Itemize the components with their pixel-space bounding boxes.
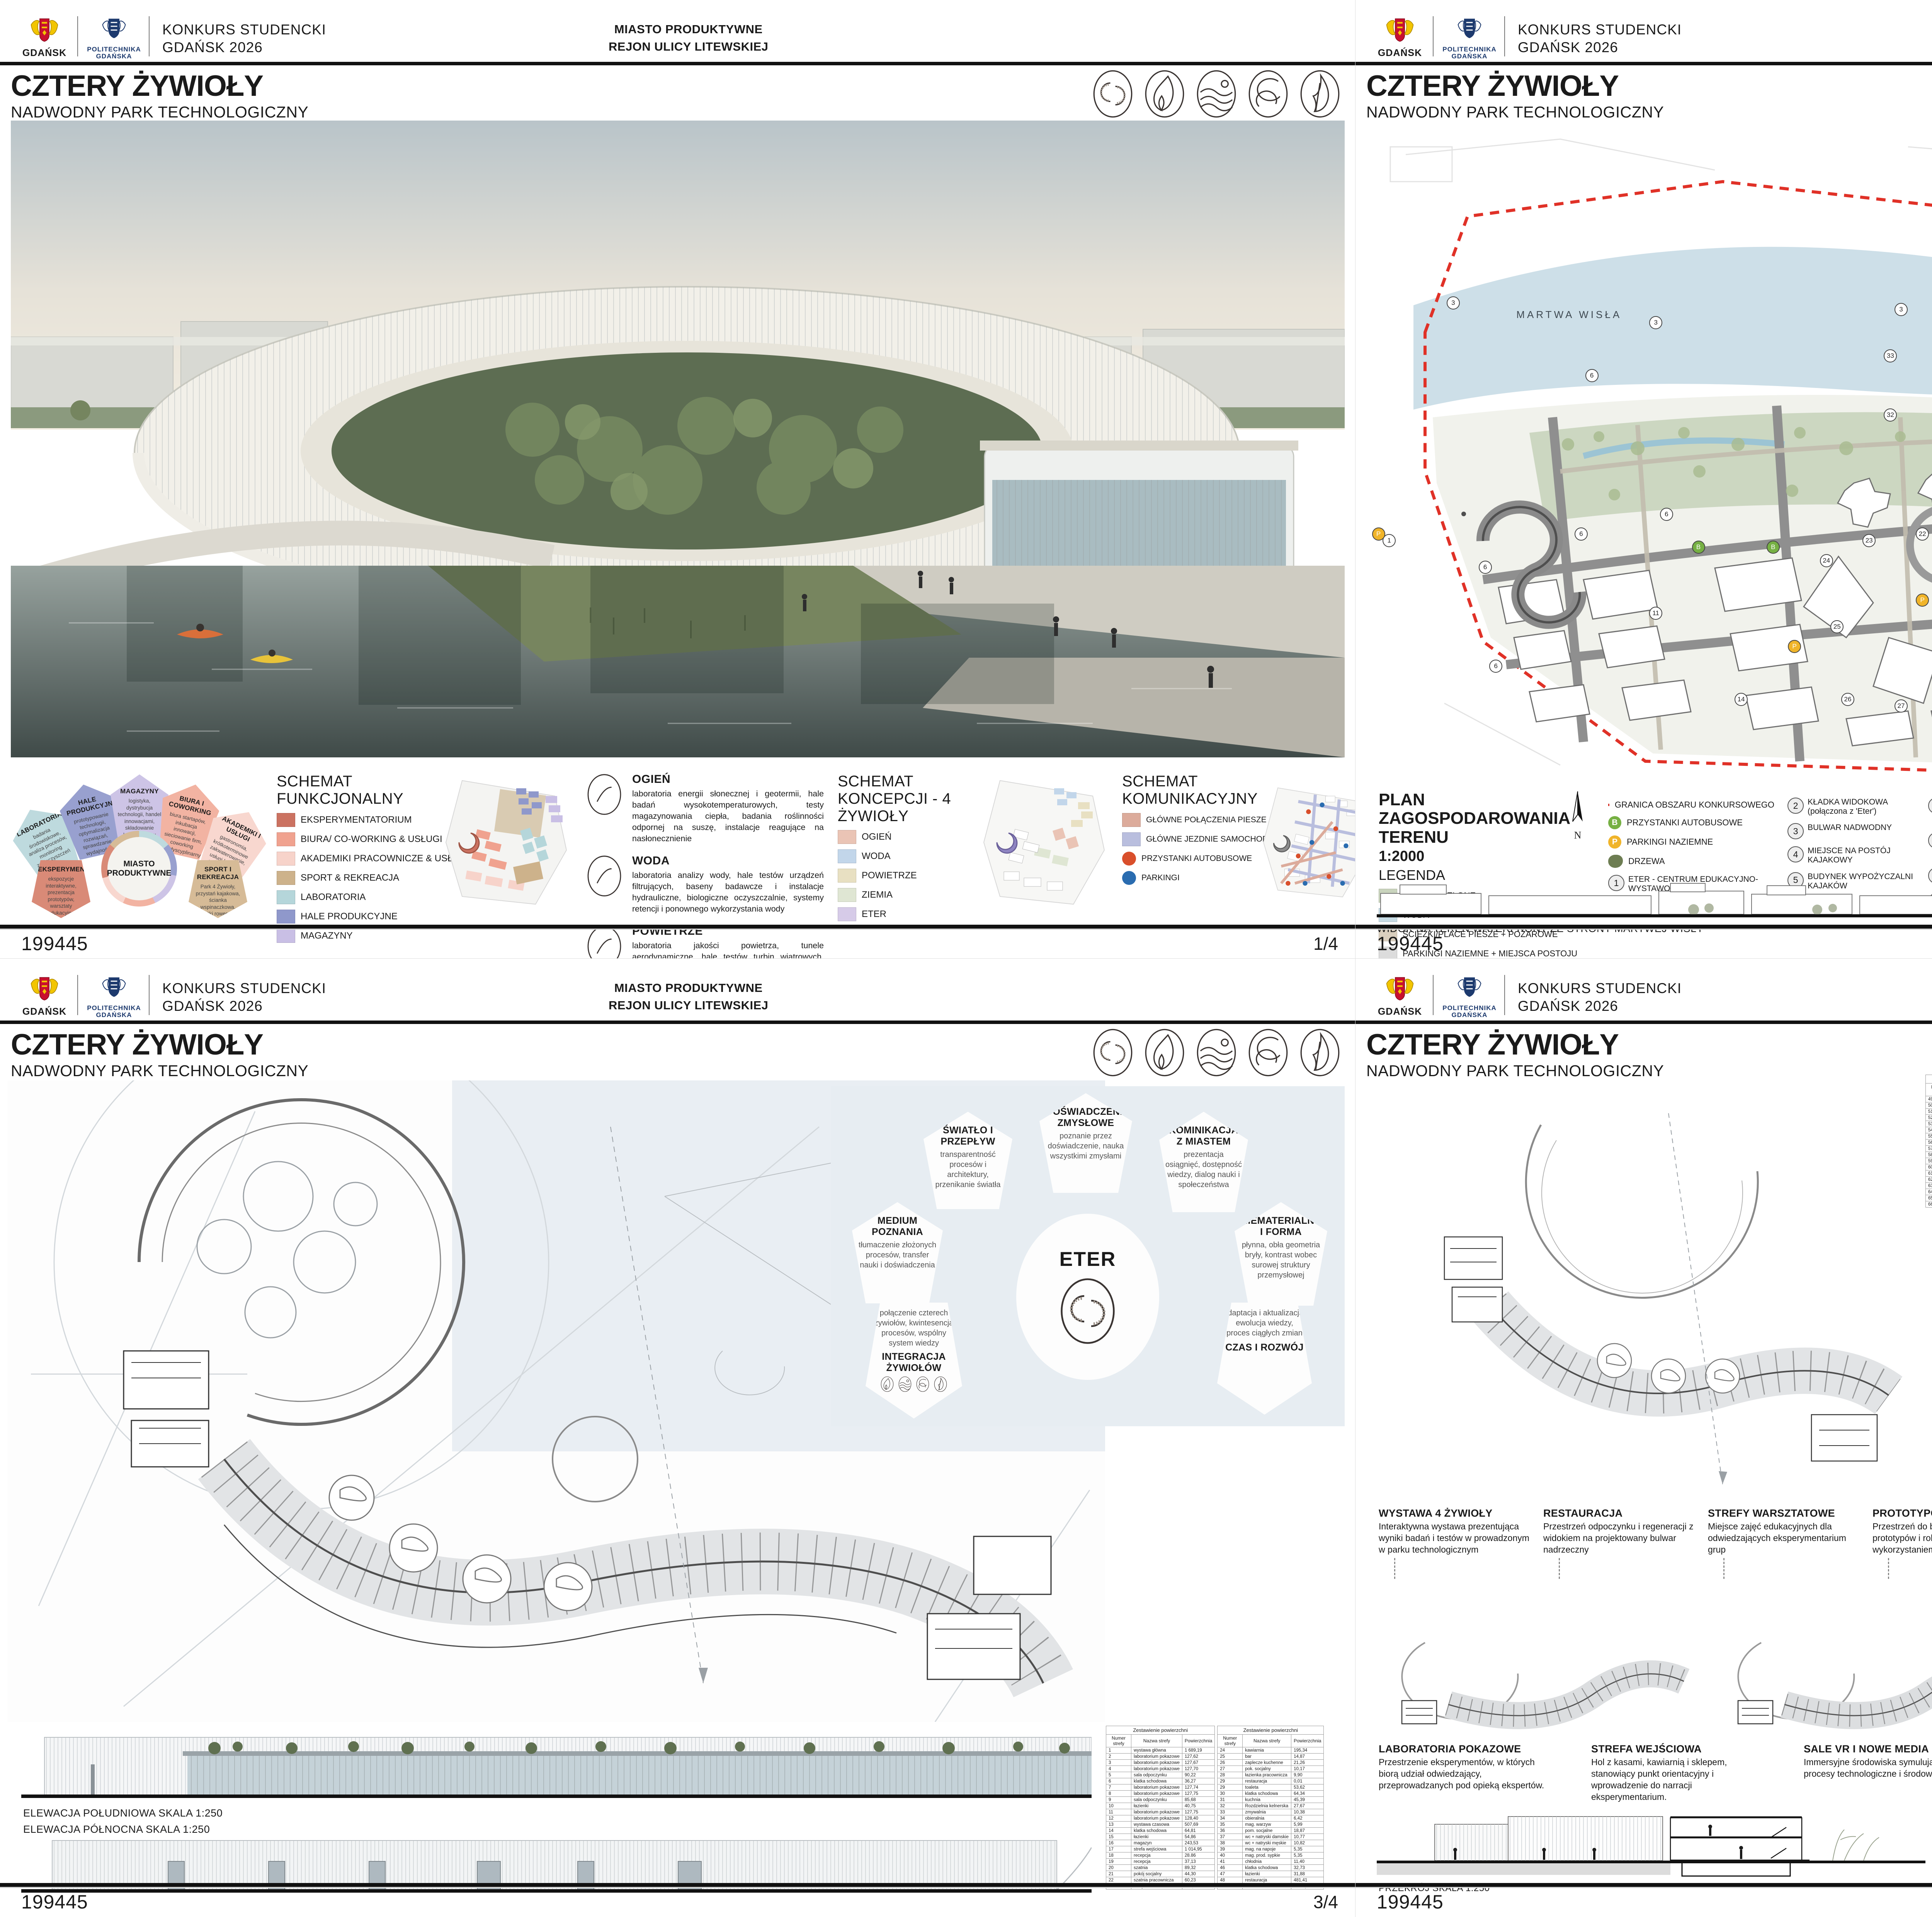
eter-petal: NIEMATERIALNOŚĆ I FORMApłynna, obła geom… (1235, 1202, 1327, 1306)
area-tables: Zestawienie powierzchni Numer strefy Naz… (1106, 1726, 1324, 1890)
plan-marker: 14 (1735, 693, 1748, 706)
plan-marker: 25 (1830, 620, 1844, 633)
legend-item: POWIETRZE (838, 869, 969, 883)
legend-item: LABORATORIA (277, 890, 431, 904)
eter-petal: MEDIUM POZNANIAtłumaczenie złożonych pro… (852, 1202, 943, 1303)
legend-item: ETER (838, 907, 969, 921)
eter-logo-icon (1055, 1276, 1121, 1346)
eter-diagram: ŚWIATŁO I PRZEPŁYWtransparentność proces… (831, 1086, 1345, 1426)
eter-petal: ŚWIATŁO I PRZEPŁYWtransparentność proces… (923, 1112, 1012, 1209)
numbered-item: 4MIEJSCE NA POSTÓJ KAJAKOWY (1787, 846, 1915, 865)
table-row: 40 mag. prod. sypkie 5,35 (1218, 1852, 1324, 1859)
element-icon (584, 773, 624, 816)
table-row: 30 klatka schodowa 64,34 (1218, 1791, 1324, 1797)
numbered-item: 6BUYDNKI Z MIESZANĄ FUNKCJĄ - BIURA, CO-… (1928, 798, 1932, 825)
table-row: 52 wystawa czasowa 384.61 (1926, 1115, 1932, 1121)
air-icon (1244, 69, 1292, 119)
table-row: 54 hol komunikacyjno- integracyjny 332,3… (1926, 1127, 1932, 1133)
elements-descriptions: OGIEŃ laboratoria energii słonecznej i g… (584, 773, 824, 920)
upper-floor-plan (1375, 1090, 1916, 1500)
table-row: 58 warsztaty 64,67 (1926, 1152, 1932, 1158)
board1-diagrams-strip: LABORATORIAbadania środowiskowe, analiza… (15, 773, 1345, 920)
element-icons (1089, 69, 1344, 119)
table-row: 31 kuchnia 45,39 (1218, 1797, 1324, 1803)
legend-item: PARKINGI (1122, 871, 1250, 885)
schemat-funkcjonalny: SCHEMAT FUNKCJONALNY EKSPERYMENTATORIUM … (277, 773, 570, 920)
table-row: 28 łazienka pracownicza 9,90 (1218, 1772, 1324, 1778)
site-plan: MARTWA WISŁA 1 3 3 3 6 6 6 6 6 11 (1367, 124, 1932, 784)
project-title-block: CZTERY ŻYWIOŁY NADWODNY PARK TECHNOLOGIC… (1366, 1030, 1664, 1080)
table-row: 6 klatka schodowa 36,27 (1106, 1778, 1215, 1784)
legend-item: BIURA/ CO-WORKING & USŁUGI (277, 832, 431, 846)
callouts-bottom: LABORATORIA POKAZOWE Przestrzenie eksper… (1379, 1743, 1932, 1803)
gdansk-logo-label: GDAŃSK (21, 48, 68, 59)
schemat-funkcjonalny-title: SCHEMAT FUNKCJONALNY (277, 773, 431, 808)
table-row: 10 łazienki 40,75 (1106, 1803, 1215, 1809)
element-item: WODA laboratoria analizy wody, hale test… (584, 854, 824, 915)
gdansk-crest-icon (1383, 15, 1417, 45)
fire-icon (879, 1376, 895, 1392)
table-row: 8 laboratorium pokazowe 127,75 (1106, 1791, 1215, 1797)
table-row: 46 klatka schodowa 32,73 (1218, 1865, 1324, 1871)
table-row: 20 szatnia 89,32 (1106, 1865, 1215, 1871)
area-table: Zestawienie powierzchni Numer strefy Naz… (1925, 1075, 1932, 1208)
table-row: 12 laboratorium pokazowe 128,40 (1106, 1815, 1215, 1822)
table-row: 62 sala VR 92,91 (1926, 1177, 1932, 1183)
water-label: MARTWA WISŁA (1516, 309, 1622, 321)
table-row: 22 szatnia pracownicza 60,23 (1106, 1877, 1215, 1883)
legend-item: WODA (838, 849, 969, 863)
table-row: 36 pom. socjalne 18,87 (1218, 1828, 1324, 1834)
air-icon (915, 1376, 930, 1392)
competition-theme: MIASTO PRODUKTYWNE REJON ULICY LITEWSKIE… (609, 980, 769, 1014)
eter-petal: DOŚWIADCZENIA ZMYSŁOWEpoznanie przez doś… (1039, 1093, 1132, 1193)
table-row: 50 łazienka 66,58 (1926, 1102, 1932, 1109)
board-2: GDAŃSK POLITECHNIKA GDAŃSKA KONKURS STUD… (1355, 0, 1932, 959)
eter-logo-icon (1089, 69, 1137, 119)
air-icon (1244, 1027, 1292, 1078)
table-row: 49 magazyn 248,76 (1926, 1096, 1932, 1102)
table-row: 25 bar 14,87 (1218, 1754, 1324, 1760)
table-row: 11 laboratorium pokazowe 127,75 (1106, 1809, 1215, 1815)
table-row: 15 łazienki 54,86 (1106, 1834, 1215, 1840)
project-title: CZTERY ŻYWIOŁY (11, 71, 308, 101)
element-icons (1089, 1027, 1344, 1078)
axon-diagram-1 (1379, 1616, 1696, 1732)
table-row: 4 laboratorium pokazowe 127,70 (1106, 1766, 1215, 1772)
legend-drzewa: DRZEWA (1608, 855, 1774, 868)
politechnika-logo-label: POLITECHNIKA GDAŃSKA (85, 46, 143, 60)
legend-item: GŁÓWNE JEZDNIE SAMOCHODOWE (1122, 832, 1250, 846)
politechnika-logo: POLITECHNIKA GDAŃSKA (1440, 15, 1498, 60)
table-row: 32 Rozdzielnia kelnerska 27,67 (1218, 1803, 1324, 1809)
board3-header: GDAŃSK POLITECHNIKA GDAŃSKA KONKURS STUD… (21, 973, 1334, 1019)
gdansk-logo: GDAŃSK (1377, 15, 1423, 59)
competition-title: KONKURS STUDENCKI GDAŃSK 2026 (162, 980, 326, 1015)
gdansk-crest-icon (28, 973, 61, 1004)
plan-scale: 1:2000 (1379, 848, 1595, 865)
table-row: 29 restauracja 0,01 (1218, 1778, 1324, 1784)
plan-marker: 6 (1585, 369, 1599, 382)
plan-marker: 3 (1895, 303, 1908, 316)
tree-icon (1608, 855, 1623, 868)
numbered-item: 7'AKADEMIKI' DLA PRACOWNIKÓW CAŁEGO OBIE… (1928, 832, 1932, 860)
table-row: 27 pok. socjalny 10,17 (1218, 1766, 1324, 1772)
table-row: 41 chłodnia 11,40 (1218, 1859, 1324, 1865)
project-title-block: CZTERY ŻYWIOŁY NADWODNY PARK TECHNOLOGIC… (11, 71, 308, 121)
element-icon (584, 854, 624, 898)
plan-marker: P (1788, 640, 1801, 653)
table-row: 59 łazienki 65,43 (1926, 1158, 1932, 1164)
board1-footer: 199445 1/4 (0, 925, 1355, 959)
table-row: 61 sala VR 92,90 (1926, 1170, 1932, 1177)
legend-granica: GRANICA OBSZARU KONKURSOWEGO (1608, 800, 1774, 810)
table-row: 9 sala odpoczynku 85,68 (1106, 1797, 1215, 1803)
competition-title: KONKURS STUDENCKI GDAŃSK 2026 (1518, 21, 1682, 57)
legend-item: EKSPERYMENTATORIUM (277, 813, 431, 827)
schemat-koncepcji: SCHEMAT KONCEPCJI - 4 ŻYWIOŁY OGIEŃ WODA (838, 773, 1108, 920)
hero-render (11, 121, 1345, 757)
dashed-boundary-icon (1608, 804, 1609, 806)
table-row: 60 klatka schodowa 64,74 (1926, 1164, 1932, 1170)
earth-icon (1296, 1027, 1344, 1078)
politechnika-logo: POLITECHNIKA GDAŃSKA (85, 15, 143, 60)
elevation-south (21, 1730, 1092, 1803)
area-table-right: Zestawienie powierzchni Numer strefy Naz… (1217, 1726, 1324, 1890)
komunikacyjny-dots: PRZYSTANKI AUTOBUSOWE PARKINGI (1122, 852, 1250, 885)
table-row: 16 magazyn 243,53 (1106, 1840, 1215, 1846)
plan-title: PLAN ZAGOSPODAROWANIA TERENU (1379, 791, 1595, 847)
table-row: 56 warsztaty 64,70 (1926, 1140, 1932, 1146)
competition-title: KONKURS STUDENCKI GDAŃSK 2026 (1518, 980, 1682, 1015)
diagram-petal: SPORT I REKREACJAPark 4 Żywioły, przysta… (189, 860, 247, 918)
table-row: 39 mag. na napoje 5,35 (1218, 1846, 1324, 1852)
table-row: 55 warsztaty 64,72 (1926, 1133, 1932, 1140)
politechnika-emblem-icon (100, 15, 128, 43)
diagram-center: MIASTO PRODUKTYWNE (101, 831, 177, 907)
table-row: 57 warsztaty 64,68 (1926, 1146, 1932, 1152)
gdansk-crest-icon (1383, 973, 1417, 1004)
water-icon (1192, 69, 1240, 119)
funkcjonalny-map (439, 773, 570, 912)
page-number: 1/4 (1313, 933, 1338, 954)
plan-marker: 6 (1660, 508, 1673, 521)
table-row: 3 laboratorium pokazowe 127,67 (1106, 1760, 1215, 1766)
table-row: 65 strefa odpoczynku 250,45 (1926, 1195, 1932, 1201)
element-item: OGIEŃ laboratoria energii słonecznej i g… (584, 773, 824, 844)
table-row: 35 mag. warzyw 5,99 (1218, 1822, 1324, 1828)
politechnika-emblem-icon (1456, 15, 1483, 43)
callout: LABORATORIA POKAZOWE Przestrzenie eksper… (1379, 1743, 1545, 1803)
plan-marker: 33 (1884, 349, 1897, 362)
competition-title: KONKURS STUDENCKI GDAŃSK 2026 (162, 21, 326, 57)
table-row: 48 restauracja 481,41 (1218, 1877, 1324, 1883)
board-1: GDAŃSK POLITECHNIKA GDAŃSKA KONKURS STUD… (0, 0, 1355, 959)
schemat-komunikacyjny: SCHEMAT KOMUNIKACYJNY GŁÓWNE POŁĄCZENIA … (1122, 773, 1355, 920)
building-section (1377, 1813, 1925, 1878)
legend-przystanki: BPRZYSTANKI AUTOBUSOWE (1608, 816, 1774, 829)
table-row: 14 klatka schodowa 64,81 (1106, 1828, 1215, 1834)
table-row: 33 zmywalnia 10,38 (1218, 1809, 1324, 1815)
area-table-left: Zestawienie powierzchni Numer strefy Naz… (1106, 1726, 1215, 1890)
callout: STREFY WARSZTATOWE Miejsce zajęć edukacy… (1708, 1507, 1862, 1579)
plan-marker: 6 (1479, 561, 1492, 574)
table-row: 66 łazienka 33,30 (1926, 1201, 1932, 1208)
elevation-south-caption: ELEWACJA POŁUDNIOWA SKALA 1:250 (23, 1807, 223, 1819)
water-icon (1192, 1027, 1240, 1078)
plan-marker: 3 (1649, 316, 1662, 329)
table-row: 47 łazienki 31,88 (1218, 1871, 1324, 1877)
eter-petal: połączenie czterech żywiołów, kwintesenc… (866, 1303, 962, 1419)
plan-marker: 26 (1841, 693, 1854, 706)
callout: WYSTAWA 4 ŻYWIOŁY Interaktywna wystawa p… (1379, 1507, 1533, 1579)
eter-petal: KOMINIKACJA Z MIASTEMprezentacja osiągni… (1159, 1112, 1248, 1212)
politechnika-emblem-icon (1456, 973, 1483, 1002)
water-icon (897, 1376, 913, 1392)
callout: STREFA WEJŚCIOWA Hol z kasami, kawiarnią… (1591, 1743, 1757, 1803)
komunikacyjny-map (1257, 773, 1355, 912)
board2-footer: 199445 2/4 (1355, 925, 1932, 959)
board1-header: GDAŃSK POLITECHNIKA GDAŃSKA KONKURS STUD… (21, 15, 1334, 60)
legend-item: HALE PRODUKCYJNE (277, 910, 431, 924)
schemat-komunikacyjny-title: SCHEMAT KOMUNIKACYJNY (1122, 773, 1250, 808)
callout: SALE VR I NOWE MEDIA Immersyjne środowis… (1804, 1743, 1932, 1803)
plan-marker: 3 (1447, 296, 1460, 310)
board4-header: GDAŃSK POLITECHNIKA GDAŃSKA KONKURS STUD… (1377, 973, 1932, 1019)
koncepcja-legend: OGIEŃ WODA POWIETRZE (838, 830, 969, 921)
koncepcja-map (977, 773, 1108, 912)
table-row: 53 wystawa główna 1 121,54 (1926, 1121, 1932, 1127)
diagram-petal: EKSPERYMENTARIUMekspozycje interaktywne,… (32, 860, 90, 918)
table-row: 18 recepcja 28.86 (1106, 1852, 1215, 1859)
board3-footer: 199445 3/4 (0, 1883, 1355, 1917)
plan-marker: B (1692, 541, 1705, 554)
board2-header: GDAŃSK POLITECHNIKA GDAŃSKA KONKURS STUD… (1377, 15, 1932, 60)
axon-diagram-2 (1715, 1616, 1932, 1732)
legend-item: OGIEŃ (838, 830, 969, 844)
table-row: 38 wc + natryski męskie 10,82 (1218, 1840, 1324, 1846)
callout: PROTOTYPOWNIA Przestrzeń do budowy własn… (1872, 1507, 1932, 1579)
komunikacyjny-swatches: GŁÓWNE POŁĄCZENIA PIESZE GŁÓWNE JEZDNIE … (1122, 813, 1250, 846)
table-row: 19 recepcja 37,13 (1106, 1859, 1215, 1865)
earth-icon (933, 1376, 948, 1392)
legend-item: ZIEMIA (838, 888, 969, 902)
table-row: 1 wystawa główna 1 689,19 (1106, 1747, 1215, 1754)
gdansk-logo: GDAŃSK (21, 15, 68, 59)
legend-item: AKADEMIKI PRACOWNICZE & USŁUGI (277, 852, 431, 866)
table-row: 7 laboratorium pokazowe 127,74 (1106, 1784, 1215, 1791)
plan-marker: B (1767, 541, 1780, 554)
gdansk-logo: GDAŃSK (21, 973, 68, 1017)
politechnika-logo: POLITECHNIKA GDAŃSKA (85, 973, 143, 1019)
elevation-north-caption: ELEWACJA PÓŁNOCNA SKALA 1:250 (23, 1823, 210, 1835)
miasto-produktywne-diagram: LABORATORIAbadania środowiskowe, analiza… (15, 773, 263, 920)
competition-theme: MIASTO PRODUKTYWNE REJON ULICY LITEWSKIE… (609, 21, 769, 56)
board-4: GDAŃSK POLITECHNIKA GDAŃSKA KONKURS STUD… (1355, 959, 1932, 1917)
table-row: 5 sala odpoczynku 90,22 (1106, 1772, 1215, 1778)
eter-logo-icon (1089, 1027, 1137, 1078)
politechnika-logo: POLITECHNIKA GDAŃSKA (1440, 973, 1498, 1019)
callout: RESTAURACJA Przestrzeń odpoczynku i rege… (1543, 1507, 1698, 1579)
callouts-top: WYSTAWA 4 ŻYWIOŁY Interaktywna wystawa p… (1379, 1507, 1932, 1579)
project-subtitle: NADWODNY PARK TECHNOLOGICZNY (11, 103, 308, 121)
eter-petal: adaptacja i aktualizacja, ewolucja wiedz… (1217, 1303, 1312, 1415)
table-row: 51 klatka schodowa 54,61 (1926, 1109, 1932, 1115)
table-row: 63 sala druku 3d 92,90 (1926, 1183, 1932, 1189)
gdansk-logo: GDAŃSK (1377, 973, 1423, 1017)
politechnika-emblem-icon (100, 973, 128, 1002)
table-row: 13 wystawa czasowa 507,69 (1106, 1822, 1215, 1828)
north-arrow: N (1564, 791, 1591, 841)
legend-item: GŁÓWNE POŁĄCZENIA PIESZE (1122, 813, 1250, 827)
project-title-block: CZTERY ŻYWIOŁY NADWODNY PARK TECHNOLOGIC… (1366, 71, 1664, 121)
plan-marker: 6 (1575, 527, 1588, 541)
parking-icon: P (1608, 835, 1621, 849)
table-row: 37 wc + natryski damskie 10,77 (1218, 1834, 1324, 1840)
board4-footer: 199445 4/4 (1355, 1883, 1932, 1917)
fire-icon (1141, 1027, 1189, 1078)
poster-canvas: GDAŃSK POLITECHNIKA GDAŃSKA KONKURS STUD… (0, 0, 1932, 1917)
numbered-item: 3BULWAR NADWODNY (1787, 823, 1915, 839)
schemat-koncepcji-title: SCHEMAT KONCEPCJI - 4 ŻYWIOŁY (838, 773, 969, 825)
plan-marker: P (1372, 527, 1385, 541)
table-row: 34 obieralnia 6,42 (1218, 1815, 1324, 1822)
gdansk-crest-icon (28, 15, 61, 45)
legend-parkingi: PPARKINGI NAZIEMNE (1608, 835, 1774, 849)
table-row: 26 zaplecze kuchenne 21,26 (1218, 1760, 1324, 1766)
table-row: 29 toaleta 53,62 (1218, 1784, 1324, 1791)
table-row: 64 Prototypownia 1 194,54 (1926, 1189, 1932, 1195)
board-3: GDAŃSK POLITECHNIKA GDAŃSKA KONKURS STUD… (0, 959, 1355, 1917)
earth-icon (1296, 69, 1344, 119)
plan-marker: 27 (1895, 699, 1908, 713)
project-title-block: CZTERY ŻYWIOŁY NADWODNY PARK TECHNOLOGIC… (11, 1030, 308, 1080)
legend-item: PRZYSTANKI AUTOBUSOWE (1122, 852, 1250, 866)
funkcjonalny-legend: EKSPERYMENTATORIUM BIURA/ CO-WORKING & U… (277, 813, 431, 943)
entry-code: 199445 (21, 932, 88, 955)
plan-marker: 24 (1820, 554, 1833, 567)
waterfront-elevation (1377, 877, 1932, 919)
table-row: 17 strefa wejściowa 1 014,95 (1106, 1846, 1215, 1852)
table-row: 2 laboratorium pokazowe 127,62 (1106, 1754, 1215, 1760)
mini-element-icons (872, 1376, 956, 1392)
bus-stop-icon: B (1608, 816, 1621, 829)
legend-item: SPORT & REKREACJA (277, 871, 431, 885)
table-row: 21 pokój socjalny 44,30 (1106, 1871, 1215, 1877)
eter-center: ETER (1016, 1214, 1159, 1380)
table-row: 24 kawiarnia 195,34 (1218, 1747, 1324, 1754)
numbered-item: 2KŁADKA WIDOKOWA (połączona z 'Eter') (1787, 798, 1915, 816)
fire-icon (1141, 69, 1189, 119)
